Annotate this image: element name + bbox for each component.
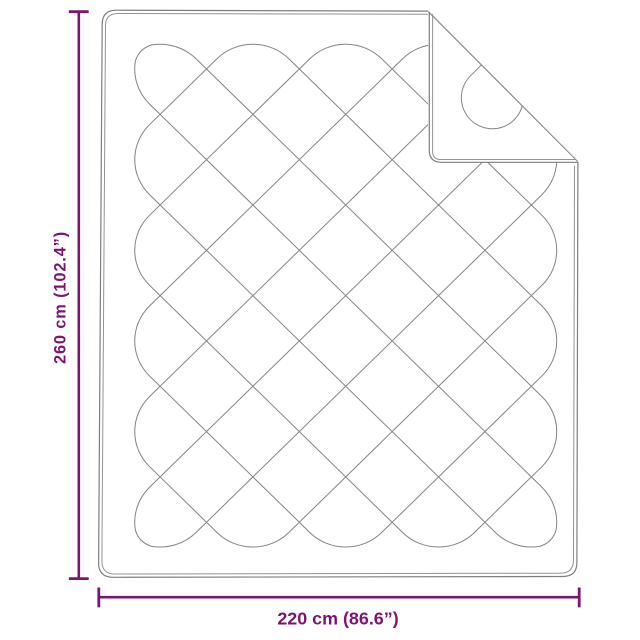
svg-text:260 cm (102.4”): 260 cm (102.4”)	[51, 231, 69, 364]
svg-text:220 cm (86.6”): 220 cm (86.6”)	[277, 608, 398, 628]
